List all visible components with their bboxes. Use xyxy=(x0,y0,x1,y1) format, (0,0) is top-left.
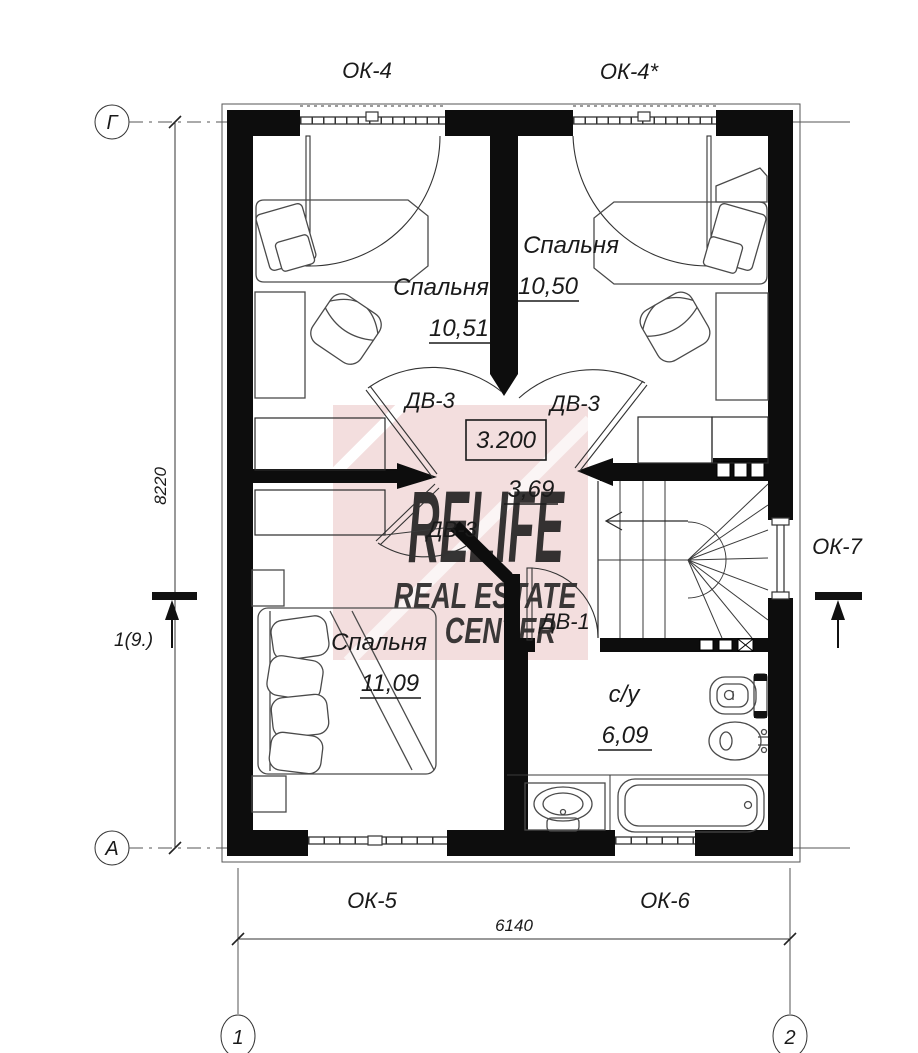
staircase xyxy=(598,481,768,638)
svg-text:10,51: 10,51 xyxy=(429,315,489,342)
desk-top-right xyxy=(716,293,768,400)
bathtub xyxy=(618,779,764,832)
winder-treads xyxy=(688,484,768,638)
section-marker-right xyxy=(815,592,862,648)
axis-label-2: 2 xyxy=(783,1027,795,1049)
washbasin xyxy=(525,783,605,831)
level-value: 3.200 xyxy=(476,427,537,454)
axis-col-left: 1 xyxy=(221,868,255,1053)
window-ok6 xyxy=(615,837,695,844)
window-ok7 xyxy=(768,518,793,599)
armchair-top-left xyxy=(306,289,387,370)
axis-label-1: 1 xyxy=(232,1027,243,1049)
svg-text:Спальня: Спальня xyxy=(331,629,427,656)
room-bedroom-top-right: Спальня 10,50 xyxy=(518,232,619,301)
svg-text:Спальня: Спальня xyxy=(523,232,619,259)
label-ok5: ОК-5 xyxy=(347,888,397,913)
room-bathroom: с/у 6,09 xyxy=(598,681,652,750)
label-ok6: ОК-6 xyxy=(640,888,690,913)
svg-text:3,69: 3,69 xyxy=(508,476,555,503)
dimension-horizontal: 6140 xyxy=(232,916,796,945)
label-ok7: ОК-7 xyxy=(812,534,862,559)
section-marker-left: 1(9.) xyxy=(114,592,197,651)
armchair-top-right xyxy=(635,287,714,366)
section-label: 1(9.) xyxy=(114,630,153,651)
toilet xyxy=(710,674,767,718)
label-dv3-a: ДВ-3 xyxy=(402,388,455,413)
label-dv3-c: ДВ-3 xyxy=(424,517,477,542)
floor-plan: RELIFE REAL ESTATE CENTER xyxy=(0,0,918,1053)
room-bedroom-top-left: Спальня 10,51 xyxy=(393,274,490,343)
dim-horizontal-text: 6140 xyxy=(495,916,533,935)
vent-crossed-square xyxy=(738,639,753,651)
svg-text:10,50: 10,50 xyxy=(518,273,579,300)
stair-direction-arrow xyxy=(606,512,688,530)
desk-top-left xyxy=(255,292,305,398)
label-dv1: ДВ-1 xyxy=(537,609,590,634)
label-ok4s: ОК-4* xyxy=(600,59,660,84)
window-ok4 xyxy=(300,106,445,266)
svg-text:6,09: 6,09 xyxy=(602,722,649,749)
label-dv3-b: ДВ-3 xyxy=(547,391,600,416)
bed-top-right xyxy=(594,168,767,284)
nightstand-top xyxy=(252,570,284,606)
watermark-line3: CENTER xyxy=(445,610,556,651)
svg-text:Спальня: Спальня xyxy=(393,274,489,301)
bidet xyxy=(709,722,768,760)
axis-label-bottom: А xyxy=(104,838,118,860)
dim-vertical-text: 8220 xyxy=(151,467,170,505)
svg-text:с/у: с/у xyxy=(609,681,642,708)
label-ok4: ОК-4 xyxy=(342,58,392,83)
svg-text:11,09: 11,09 xyxy=(361,670,419,697)
dimension-vertical: 8220 xyxy=(151,122,175,848)
bed-top-left xyxy=(255,200,428,282)
window-ok5 xyxy=(308,836,447,845)
hallway-area: 3,69 xyxy=(504,476,558,504)
nightstand-bottom xyxy=(252,776,286,812)
axis-col-right: 2 xyxy=(773,868,807,1053)
axis-label-top: Г xyxy=(107,112,120,134)
